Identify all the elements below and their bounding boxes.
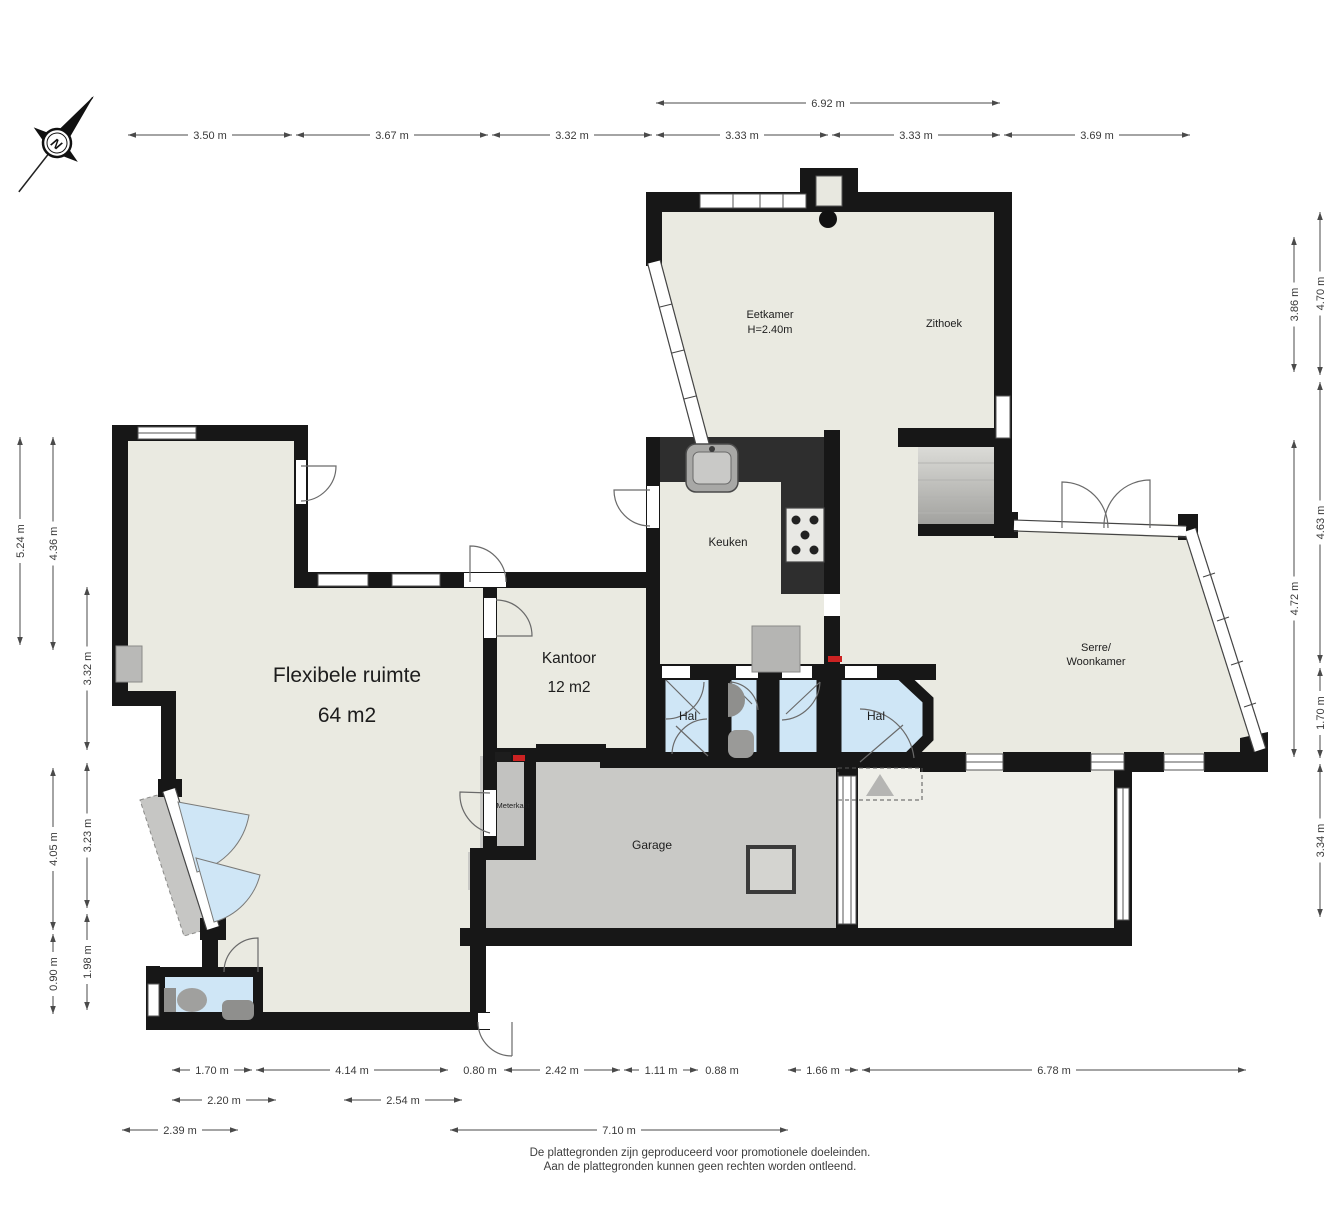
- room-label-hal-1: Hal: [679, 709, 697, 723]
- room-label-text: Serre/: [1081, 642, 1112, 654]
- room-label-text: Garage: [632, 838, 672, 852]
- dimension-label: 4.05 m: [48, 832, 60, 866]
- dimension-label: 4.36 m: [48, 527, 60, 561]
- compass-icon: N: [0, 78, 116, 209]
- bath-sink: [222, 1000, 254, 1020]
- flex-cabinet: [116, 646, 142, 682]
- dimension-label: 2.20 m: [207, 1095, 241, 1107]
- dimension-label: 3.32 m: [555, 130, 589, 142]
- stairs: [918, 446, 998, 528]
- room-label-text: Zithoek: [926, 318, 963, 330]
- dimension: 4.05 m: [47, 768, 60, 930]
- dimension-label: 3.33 m: [899, 130, 933, 142]
- dimension: 0.90 m: [47, 934, 60, 1014]
- dimension-label: 6.92 m: [811, 98, 845, 110]
- room-label-text: Meterkast: [497, 801, 531, 810]
- room-label-text: Hal: [867, 709, 885, 723]
- dimension-label: 3.86 m: [1289, 288, 1301, 322]
- dimension-label: 2.39 m: [163, 1125, 197, 1137]
- dimension: 1.70 m: [1314, 668, 1327, 758]
- dimension: 7.10 m: [450, 1124, 788, 1137]
- dimension: 3.23 m: [81, 763, 94, 908]
- dimension-label: 7.10 m: [602, 1125, 636, 1137]
- dimension: 2.42 m: [504, 1064, 620, 1077]
- floors: [122, 198, 1262, 1020]
- dimension-label: 0.88 m: [705, 1065, 739, 1077]
- dimension-label: 3.32 m: [82, 652, 94, 686]
- footer-line-1: De plattegronden zijn geproduceerd voor …: [530, 1147, 871, 1159]
- floor-terrace: [858, 768, 1116, 930]
- dimension-label: 3.33 m: [725, 130, 759, 142]
- dimension-label: 3.67 m: [375, 130, 409, 142]
- dimension: 1.98 m: [81, 914, 94, 1010]
- garage-skylight: [748, 847, 794, 892]
- room-label-text: Keuken: [708, 537, 747, 549]
- dimension: 2.54 m: [344, 1094, 462, 1107]
- floor-plan-svg: N 3.50 m3.67 m3.32 m3.33 m3.33 m3.69 m6.…: [0, 0, 1339, 1216]
- room-label-text: Hal: [679, 709, 697, 723]
- dimension: 4.36 m: [47, 437, 60, 650]
- room-label-text: Eetkamer: [746, 309, 793, 321]
- dimension: 3.33 m: [656, 129, 828, 142]
- dimension: 3.33 m: [832, 129, 1000, 142]
- floor-kantoor: [490, 580, 650, 756]
- dimension-label: 4.14 m: [335, 1065, 369, 1077]
- wc-toilet: [728, 730, 754, 758]
- dimension: 4.72 m: [1288, 440, 1301, 757]
- dimension: 5.24 m: [14, 437, 27, 645]
- fridge: [752, 626, 800, 672]
- dimension: 1.66 m: [788, 1064, 858, 1077]
- dimension-label: 2.54 m: [386, 1095, 420, 1107]
- dimension-label: 3.23 m: [82, 819, 94, 853]
- room-label-hal-2: Hal: [867, 709, 885, 723]
- dimension-label: 1.70 m: [1315, 696, 1327, 730]
- dimension: 6.78 m: [862, 1064, 1246, 1077]
- dimension-label: 4.63 m: [1315, 506, 1327, 540]
- bath-toilet: [177, 988, 207, 1012]
- door-keuken-west: [614, 490, 650, 526]
- dimension-label: 5.24 m: [15, 524, 27, 558]
- kitchen-sink: [686, 444, 738, 492]
- dimension: 1.70 m: [172, 1064, 252, 1077]
- column-dot: [819, 210, 837, 228]
- garage-door: [838, 776, 856, 924]
- dimension-label: 3.50 m: [193, 130, 227, 142]
- room-label-sub: 64 m2: [318, 704, 376, 727]
- dimension: 3.69 m: [1004, 129, 1190, 142]
- dimension-label: 0.90 m: [48, 957, 60, 991]
- dimension-label: 4.70 m: [1315, 277, 1327, 311]
- dimension: 6.92 m: [656, 97, 1000, 110]
- dimension-label: 1.98 m: [82, 945, 94, 979]
- room-label-sub: 12 m2: [547, 679, 590, 696]
- window: [392, 574, 440, 586]
- room-label-keuken: Keuken: [708, 537, 747, 549]
- dimension-label: 1.66 m: [806, 1065, 840, 1077]
- floor-plan-page: N 3.50 m3.67 m3.32 m3.33 m3.33 m3.69 m6.…: [0, 0, 1339, 1216]
- dimension: 0.88 m: [700, 1064, 744, 1077]
- window: [996, 396, 1010, 438]
- dimension-label: 6.78 m: [1037, 1065, 1071, 1077]
- red-marker: [828, 656, 842, 662]
- dimension: 3.34 m: [1314, 764, 1327, 917]
- window: [700, 194, 806, 208]
- dimension: 4.70 m: [1314, 212, 1327, 375]
- dimension: 3.67 m: [296, 129, 488, 142]
- dimension: 2.39 m: [122, 1124, 238, 1137]
- room-label-garage: Garage: [632, 838, 672, 852]
- room-label-sub: H=2.40m: [748, 324, 793, 336]
- room-label-sub: Woonkamer: [1066, 656, 1125, 668]
- room-label-text: Flexibele ruimte: [273, 664, 421, 687]
- dimension-label: 2.42 m: [545, 1065, 579, 1077]
- window: [318, 574, 368, 586]
- chimney-slot: [816, 176, 842, 206]
- dimension-label: 4.72 m: [1289, 582, 1301, 616]
- footer-line-2: Aan de plattegronden kunnen geen rechten…: [544, 1161, 857, 1173]
- bath-toilet-tank: [164, 988, 176, 1012]
- dimension-label: 0.80 m: [463, 1065, 497, 1077]
- window: [148, 984, 159, 1016]
- dimension: 1.11 m: [624, 1064, 698, 1077]
- red-marker: [513, 755, 525, 761]
- dimension: 3.32 m: [81, 587, 94, 750]
- dimension-label: 1.11 m: [645, 1065, 678, 1077]
- dimension: 2.20 m: [172, 1094, 276, 1107]
- dimension: 4.63 m: [1314, 382, 1327, 663]
- room-label-meterkast: Meterkast: [497, 801, 531, 810]
- dimension-label: 3.34 m: [1315, 824, 1327, 858]
- dimension-label: 3.69 m: [1080, 130, 1114, 142]
- french-door-right: [1104, 480, 1150, 528]
- french-door-left: [1062, 482, 1108, 528]
- dimension: 0.80 m: [458, 1064, 502, 1077]
- dimension: 3.86 m: [1288, 237, 1301, 372]
- room-label-zithoek: Zithoek: [926, 318, 963, 330]
- stove: [786, 508, 824, 562]
- dimension-label: 1.70 m: [195, 1065, 229, 1077]
- room-label-text: Kantoor: [542, 650, 596, 667]
- dimension: 4.14 m: [256, 1064, 448, 1077]
- dimension: 3.32 m: [492, 129, 652, 142]
- dimension: 3.50 m: [128, 129, 292, 142]
